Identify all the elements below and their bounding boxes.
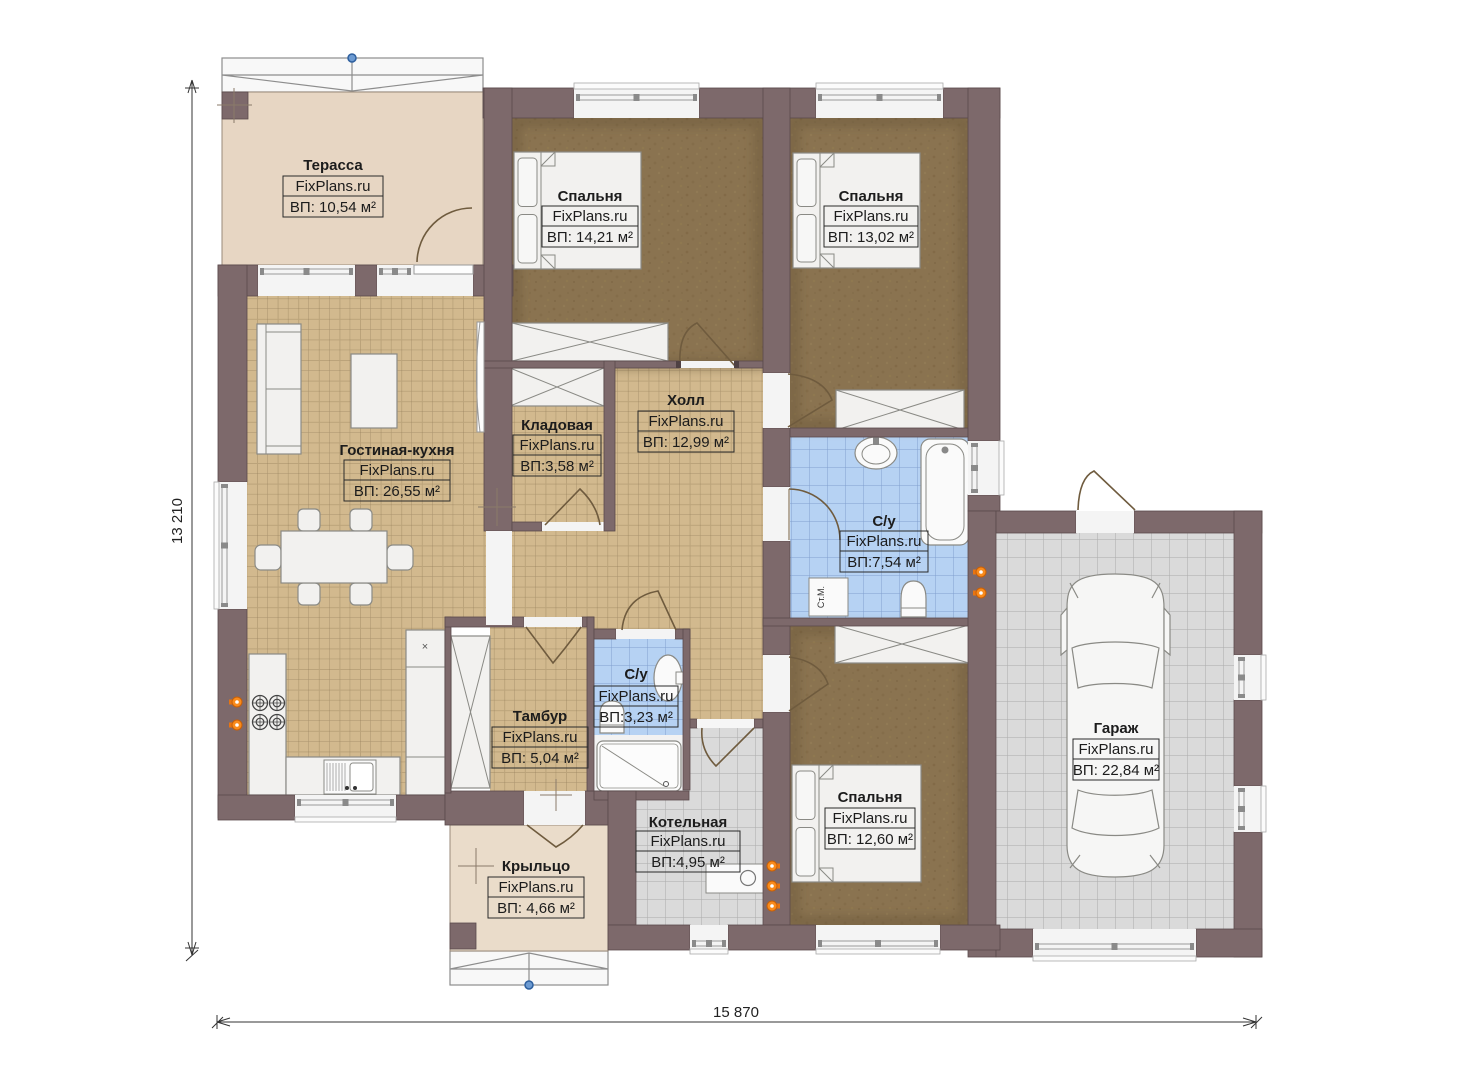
svg-text:Тамбур: Тамбур [513,708,567,725]
svg-text:Гараж: Гараж [1094,720,1139,737]
svg-text:ВП: 22,84 м²: ВП: 22,84 м² [1073,762,1159,779]
svg-text:×: × [422,641,428,653]
svg-text:FixPlans.ru: FixPlans.ru [846,533,921,550]
svg-text:ВП:3,23 м²: ВП:3,23 м² [599,709,673,726]
svg-text:FixPlans.ru: FixPlans.ru [650,833,725,850]
svg-text:Крыльцо: Крыльцо [502,858,570,875]
svg-text:15 870: 15 870 [713,1004,759,1021]
svg-text:ВП: 13,02 м²: ВП: 13,02 м² [828,229,914,246]
svg-text:13 210: 13 210 [169,498,186,544]
svg-text:FixPlans.ru: FixPlans.ru [498,879,573,896]
svg-text:ВП: 12,99 м²: ВП: 12,99 м² [643,434,729,451]
svg-text:ВП: 4,66 м²: ВП: 4,66 м² [497,900,575,917]
svg-text:FixPlans.ru: FixPlans.ru [295,178,370,195]
svg-text:FixPlans.ru: FixPlans.ru [502,729,577,746]
svg-text:ВП:4,95 м²: ВП:4,95 м² [651,854,725,871]
svg-text:FixPlans.ru: FixPlans.ru [519,437,594,454]
svg-text:ВП: 10,54 м²: ВП: 10,54 м² [290,199,376,216]
svg-text:Спальня: Спальня [558,188,623,205]
svg-text:FixPlans.ru: FixPlans.ru [359,462,434,479]
svg-text:ВП:3,58 м²: ВП:3,58 м² [520,458,594,475]
svg-text:ВП: 5,04 м²: ВП: 5,04 м² [501,750,579,767]
svg-text:FixPlans.ru: FixPlans.ru [552,208,627,225]
svg-text:Терасса: Терасса [303,157,363,174]
svg-text:Холл: Холл [667,392,705,409]
svg-text:ВП: 14,21 м²: ВП: 14,21 м² [547,229,633,246]
svg-text:Спальня: Спальня [839,188,904,205]
svg-text:FixPlans.ru: FixPlans.ru [833,208,908,225]
svg-text:Гостиная-кухня: Гостиная-кухня [340,442,455,459]
svg-text:Спальня: Спальня [838,789,903,806]
svg-text:ВП:7,54 м²: ВП:7,54 м² [847,554,921,571]
svg-text:Ст.М.: Ст.М. [816,586,826,608]
svg-text:FixPlans.ru: FixPlans.ru [598,688,673,705]
svg-text:ВП: 26,55 м²: ВП: 26,55 м² [354,483,440,500]
svg-text:ВП: 12,60 м²: ВП: 12,60 м² [827,831,913,848]
svg-text:Котельная: Котельная [649,814,728,831]
svg-text:Кладовая: Кладовая [521,417,593,434]
svg-text:С/у: С/у [872,513,896,530]
svg-text:FixPlans.ru: FixPlans.ru [1078,741,1153,758]
svg-text:FixPlans.ru: FixPlans.ru [648,413,723,430]
svg-text:FixPlans.ru: FixPlans.ru [832,810,907,827]
svg-text:С/у: С/у [624,666,648,683]
